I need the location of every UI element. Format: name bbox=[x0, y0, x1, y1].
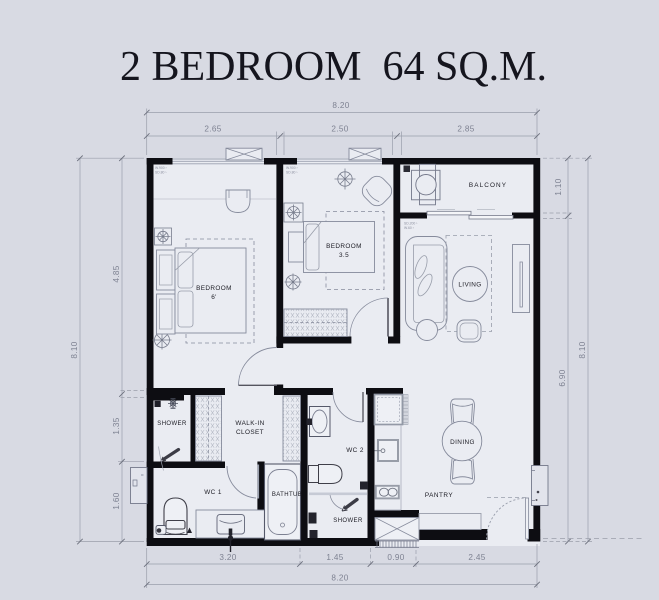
svg-text:BATHTUB: BATHTUB bbox=[272, 492, 302, 498]
svg-text:W.900 ›: W.900 › bbox=[286, 166, 298, 170]
svg-text:WALK-IN: WALK-IN bbox=[235, 420, 264, 427]
svg-text:SHOWER: SHOWER bbox=[157, 421, 187, 427]
svg-text:PANTRY: PANTRY bbox=[425, 492, 454, 499]
svg-text:3.20: 3.20 bbox=[219, 553, 236, 562]
svg-text:8.10: 8.10 bbox=[578, 341, 587, 358]
svg-text:SHOWER: SHOWER bbox=[333, 518, 363, 524]
svg-text:W.900 ›: W.900 › bbox=[155, 166, 167, 170]
svg-text:6': 6' bbox=[211, 294, 217, 301]
svg-text:8.10: 8.10 bbox=[70, 341, 79, 358]
svg-text:2.50: 2.50 bbox=[331, 125, 348, 134]
svg-text:BEDROOM: BEDROOM bbox=[196, 285, 232, 292]
svg-text:2.65: 2.65 bbox=[204, 125, 221, 134]
svg-text:1.60: 1.60 bbox=[112, 492, 121, 509]
svg-text:3.5: 3.5 bbox=[339, 252, 349, 259]
svg-text:4.85: 4.85 bbox=[112, 265, 121, 282]
svg-text:8.20: 8.20 bbox=[331, 574, 348, 583]
svg-text:1.45: 1.45 bbox=[326, 553, 343, 562]
svg-text:8.20: 8.20 bbox=[332, 101, 349, 110]
svg-text:W.60 ›: W.60 › bbox=[404, 226, 414, 230]
svg-text:1.35: 1.35 bbox=[112, 417, 121, 434]
svg-text:SD.200 ›: SD.200 › bbox=[404, 222, 417, 226]
svg-text:CLOSET: CLOSET bbox=[236, 429, 264, 436]
svg-text:SD.80 ›: SD.80 › bbox=[286, 171, 298, 175]
svg-text:BEDROOM: BEDROOM bbox=[326, 243, 362, 250]
svg-text:BALCONY: BALCONY bbox=[469, 182, 507, 189]
svg-text:WC 2: WC 2 bbox=[346, 447, 364, 454]
svg-text:6.90: 6.90 bbox=[558, 369, 567, 386]
svg-text:2.85: 2.85 bbox=[457, 125, 474, 134]
svg-text:DINING: DINING bbox=[450, 439, 475, 446]
svg-text:0.90: 0.90 bbox=[387, 553, 404, 562]
svg-text:WC 1: WC 1 bbox=[204, 489, 222, 496]
svg-text:2.45: 2.45 bbox=[468, 553, 485, 562]
svg-text:SD.80 ›: SD.80 › bbox=[155, 171, 167, 175]
svg-text:LIVING: LIVING bbox=[458, 282, 481, 289]
svg-text:1.10: 1.10 bbox=[554, 178, 563, 195]
